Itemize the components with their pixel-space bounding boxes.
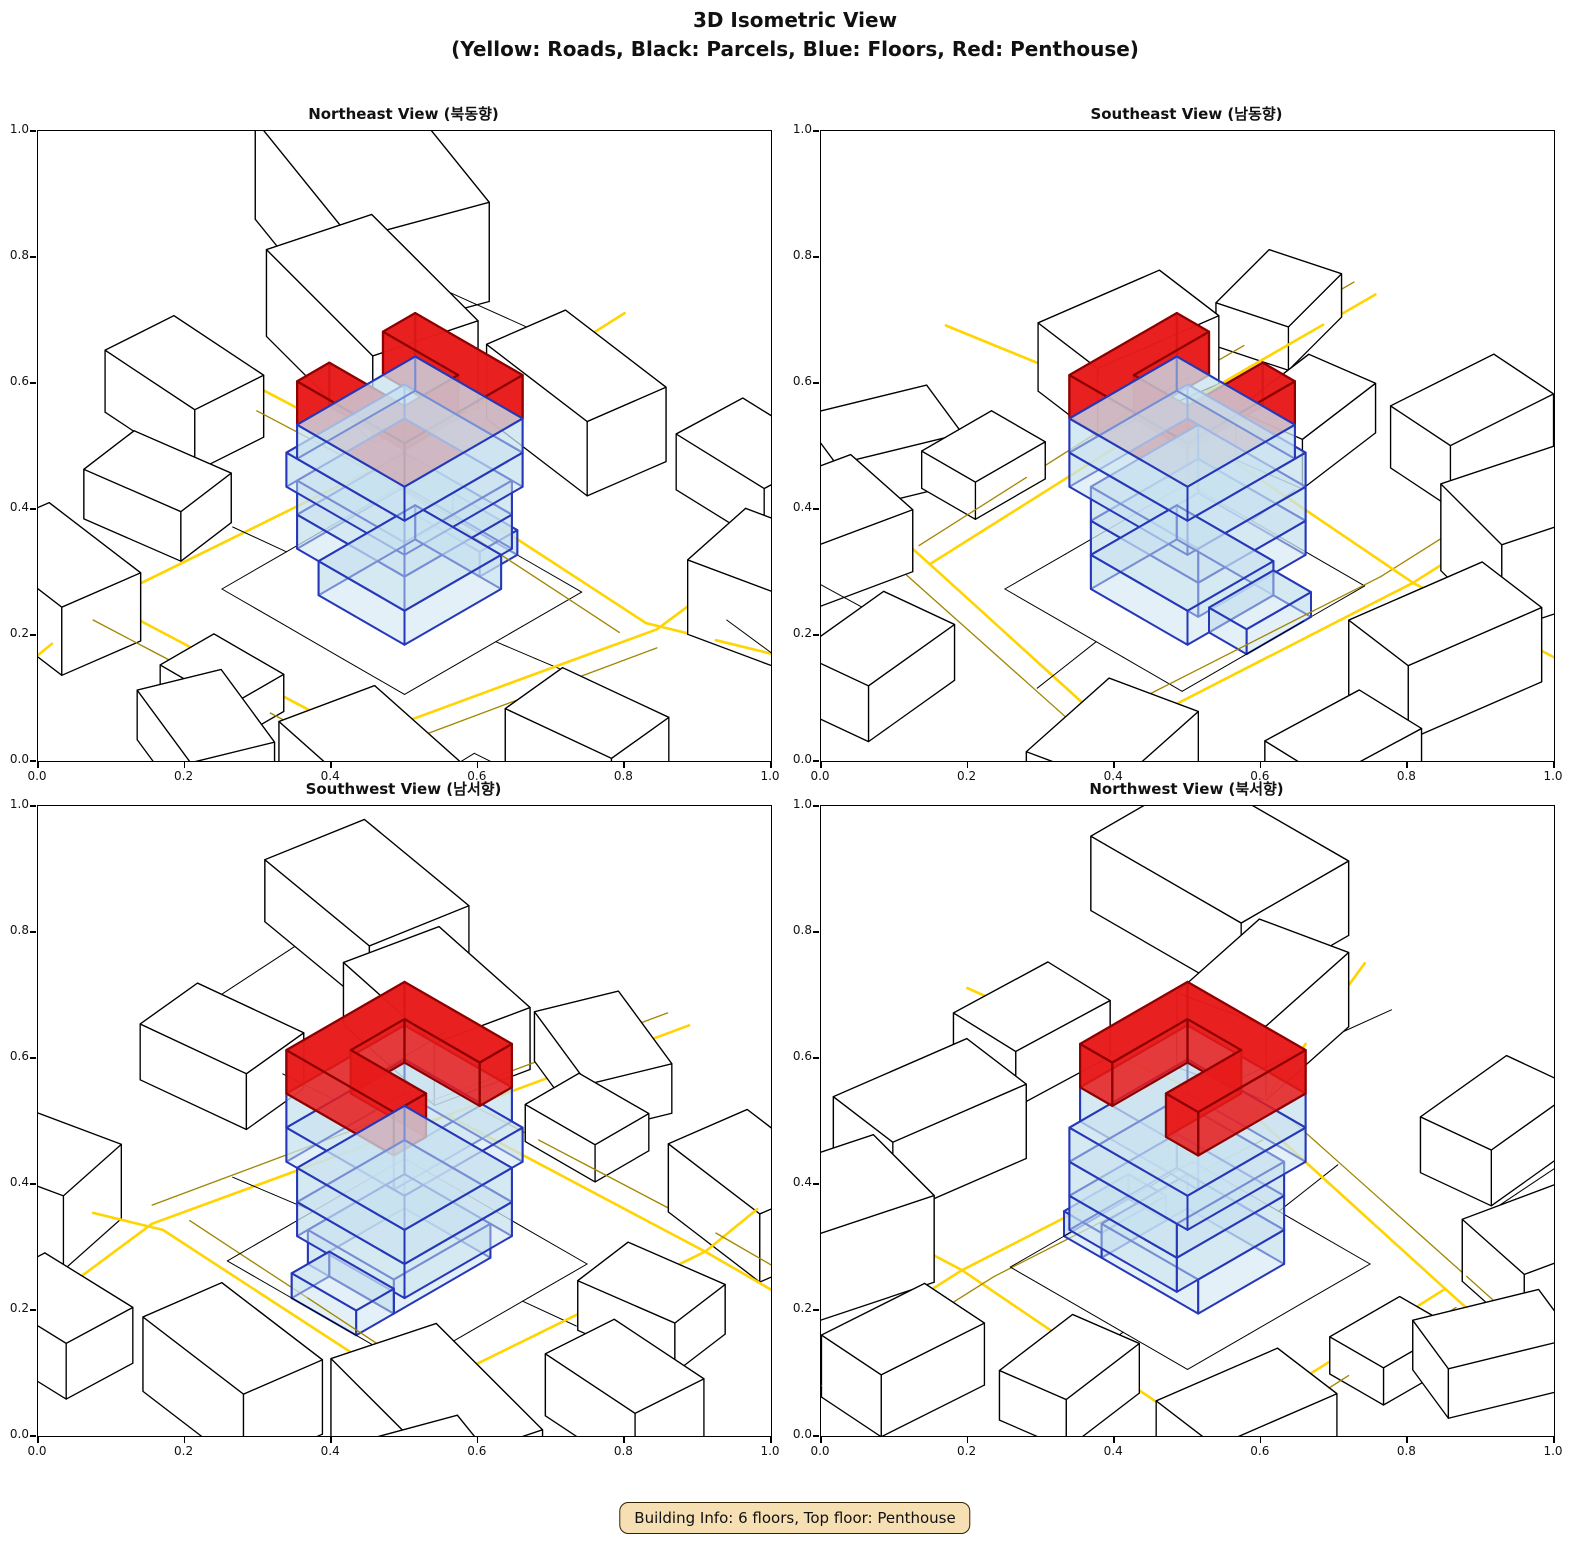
y-tick-label: 0.8 — [778, 248, 812, 262]
x-tick-mark — [770, 762, 772, 768]
parcel-line — [283, 624, 344, 659]
parcel-line — [1010, 1267, 1069, 1301]
road-line — [1398, 1246, 1445, 1289]
figure-title-line2: (Yellow: Roads, Black: Parcels, Blue: Fl… — [0, 35, 1590, 64]
parcel-line — [405, 660, 464, 694]
y-tick-label: 1.0 — [0, 797, 29, 811]
x-tick-label: 0.4 — [308, 1444, 352, 1458]
x-tick-mark — [477, 1437, 479, 1443]
x-tick-mark — [477, 762, 479, 768]
road-line — [596, 590, 647, 623]
y-tick-mark — [30, 805, 36, 807]
x-tick-mark — [1406, 1437, 1408, 1443]
x-tick-mark — [967, 1437, 969, 1443]
road-minor-line — [1422, 1237, 1466, 1277]
y-tick-mark — [813, 931, 819, 933]
x-tick-label: 0.2 — [945, 1444, 989, 1458]
y-tick-label: 0.4 — [0, 1175, 29, 1189]
y-tick-mark — [813, 1435, 819, 1437]
scene-northeast — [37, 130, 772, 762]
scene-northwest — [820, 805, 1555, 1437]
parcel-line — [233, 527, 287, 552]
y-tick-label: 0.4 — [778, 500, 812, 514]
road-line — [962, 1241, 1019, 1270]
parcel-line — [1311, 1230, 1370, 1264]
x-tick-mark — [1113, 762, 1115, 768]
parcel-line — [523, 592, 582, 626]
y-tick-label: 0.4 — [778, 1175, 812, 1189]
road-line — [962, 1270, 1011, 1304]
y-tick-label: 0.0 — [778, 1427, 812, 1441]
y-tick-label: 0.0 — [0, 752, 29, 766]
x-tick-label: 0.0 — [798, 1444, 842, 1458]
y-tick-label: 0.0 — [0, 1427, 29, 1441]
y-tick-mark — [30, 760, 36, 762]
road-line — [107, 1224, 152, 1258]
y-tick-mark — [30, 256, 36, 258]
y-tick-label: 1.0 — [778, 797, 812, 811]
parcel-line — [1309, 1264, 1370, 1299]
x-tick-label: 0.2 — [162, 1444, 206, 1458]
road-line — [473, 1337, 531, 1366]
x-tick-label: 0.6 — [1238, 1444, 1282, 1458]
subplot-title-northwest: Northwest View (북서향) — [820, 778, 1553, 799]
road-line — [1314, 516, 1363, 550]
x-tick-mark — [623, 762, 625, 768]
x-tick-mark — [330, 1437, 332, 1443]
x-tick-mark — [623, 1437, 625, 1443]
subplot-northwest: Northwest View (북서향) 0.00.20.40.60.81.00… — [820, 805, 1553, 1435]
y-tick-label: 0.6 — [778, 374, 812, 388]
y-tick-label: 0.4 — [0, 500, 29, 514]
x-tick-label: 0.0 — [15, 1444, 59, 1458]
y-tick-mark — [813, 508, 819, 510]
subplot-northeast: Northeast View (북동향) 0.00.20.40.60.81.00… — [37, 130, 770, 760]
y-tick-mark — [813, 634, 819, 636]
y-tick-label: 1.0 — [778, 122, 812, 136]
parcel-line — [233, 952, 287, 987]
x-tick-label: 1.0 — [1531, 1444, 1575, 1458]
road-line — [163, 1230, 214, 1263]
y-tick-label: 0.8 — [778, 923, 812, 937]
y-tick-mark — [30, 1183, 36, 1185]
figure-title-line1: 3D Isometric View — [0, 6, 1590, 35]
x-tick-mark — [820, 1437, 822, 1443]
x-tick-mark — [1260, 1437, 1262, 1443]
y-tick-label: 0.2 — [0, 1301, 29, 1315]
parcel-line — [1005, 554, 1066, 589]
road-minor-line — [1554, 431, 1555, 467]
y-tick-label: 0.8 — [0, 923, 29, 937]
y-tick-label: 0.2 — [778, 626, 812, 640]
x-tick-mark — [37, 1437, 39, 1443]
scene-southwest — [37, 805, 772, 1437]
y-tick-label: 1.0 — [0, 122, 29, 136]
parcel-line — [523, 1301, 577, 1326]
x-tick-label: 0.8 — [1384, 1444, 1428, 1458]
figure: 3D Isometric View (Yellow: Roads, Black:… — [0, 0, 1590, 1560]
figure-title: 3D Isometric View (Yellow: Roads, Black:… — [0, 6, 1590, 64]
subplot-title-southeast: Southeast View (남동향) — [820, 103, 1553, 124]
road-minor-line — [1334, 1158, 1378, 1198]
x-tick-mark — [37, 762, 39, 768]
road-minor-line — [1378, 1197, 1422, 1237]
x-tick-mark — [330, 762, 332, 768]
x-tick-mark — [1260, 762, 1262, 768]
y-tick-mark — [813, 130, 819, 132]
y-tick-label: 0.2 — [778, 1301, 812, 1315]
y-tick-mark — [30, 931, 36, 933]
y-tick-mark — [813, 760, 819, 762]
x-tick-label: 0.4 — [1091, 1444, 1135, 1458]
x-tick-label: 0.6 — [455, 1444, 499, 1458]
subplot-title-northeast: Northeast View (북동향) — [37, 103, 770, 124]
y-tick-mark — [30, 130, 36, 132]
parcel-line — [1064, 623, 1123, 657]
road-minor-line — [997, 656, 1041, 696]
building-info-badge: Building Info: 6 floors, Top floor: Pent… — [619, 1502, 970, 1534]
road-minor-line — [598, 1171, 657, 1202]
y-tick-mark — [30, 1057, 36, 1059]
y-tick-label: 0.6 — [778, 1049, 812, 1063]
x-tick-label: 1.0 — [748, 1444, 792, 1458]
y-tick-mark — [813, 256, 819, 258]
y-tick-mark — [813, 1057, 819, 1059]
y-tick-label: 0.8 — [0, 248, 29, 262]
x-tick-mark — [770, 1437, 772, 1443]
road-line — [1364, 549, 1413, 583]
x-tick-mark — [1553, 762, 1555, 768]
x-tick-mark — [820, 762, 822, 768]
road-minor-line — [221, 1154, 290, 1180]
y-tick-mark — [30, 1309, 36, 1311]
y-tick-mark — [813, 382, 819, 384]
parcel-line — [1005, 589, 1064, 623]
y-tick-mark — [813, 805, 819, 807]
y-tick-mark — [30, 508, 36, 510]
x-tick-mark — [1553, 1437, 1555, 1443]
x-tick-mark — [184, 762, 186, 768]
parcel-line — [1304, 586, 1365, 621]
parcel-line — [1067, 642, 1097, 665]
x-tick-mark — [1113, 1437, 1115, 1443]
x-tick-label: 0.8 — [601, 1444, 645, 1458]
parcel-line — [469, 1298, 528, 1332]
y-tick-mark — [813, 1183, 819, 1185]
subplot-title-southwest: Southwest View (남서향) — [37, 778, 770, 799]
parcel-line — [222, 555, 281, 589]
subplot-southeast: Southeast View (남동향) 0.00.20.40.60.81.00… — [820, 130, 1553, 760]
road-line — [758, 1282, 773, 1312]
y-tick-label: 0.2 — [0, 626, 29, 640]
parcel-line — [1010, 1232, 1071, 1267]
y-tick-mark — [30, 1435, 36, 1437]
x-tick-mark — [1406, 762, 1408, 768]
y-tick-label: 0.6 — [0, 1049, 29, 1063]
parcel-line — [526, 1229, 587, 1264]
parcel-line — [496, 642, 536, 659]
subplot-southwest: Southwest View (남서향) 0.00.20.40.60.81.00… — [37, 805, 770, 1435]
y-tick-mark — [30, 382, 36, 384]
road-line — [1351, 1204, 1398, 1247]
road-minor-line — [771, 1265, 772, 1297]
scene-southeast — [820, 130, 1555, 762]
parcel-line — [1248, 1299, 1309, 1334]
parcel-line — [222, 589, 283, 624]
road-line — [930, 564, 977, 607]
x-tick-mark — [967, 762, 969, 768]
parcel-line — [472, 302, 532, 329]
road-line — [946, 326, 1019, 356]
road-minor-line — [919, 512, 973, 546]
x-tick-mark — [184, 1437, 186, 1443]
y-tick-mark — [813, 1309, 819, 1311]
y-tick-label: 0.0 — [778, 752, 812, 766]
y-tick-label: 0.6 — [0, 374, 29, 388]
parcel-line — [1306, 552, 1365, 586]
parcel-line — [227, 1227, 286, 1261]
parcel-line — [464, 626, 523, 660]
y-tick-mark — [30, 634, 36, 636]
road-minor-line — [953, 616, 997, 656]
